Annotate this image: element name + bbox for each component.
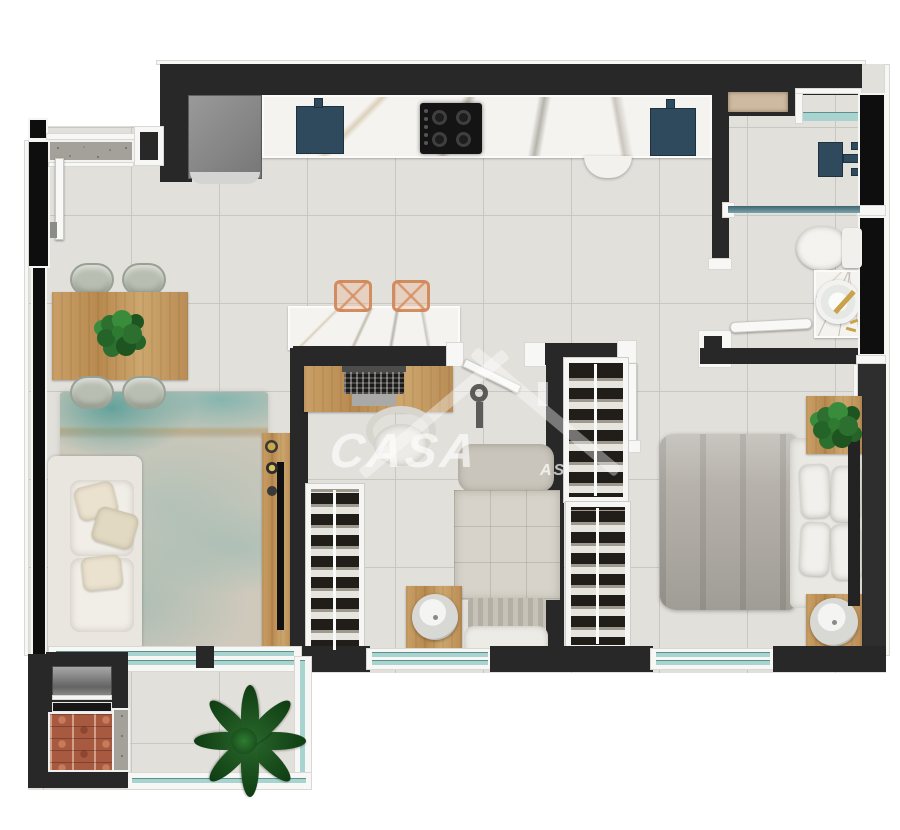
refrigerator-base bbox=[190, 172, 260, 184]
bathroom-left-wall-cap bbox=[708, 258, 732, 270]
shower-head bbox=[818, 142, 843, 177]
bedroom2-window-glass bbox=[656, 652, 770, 657]
console-decor-dark bbox=[266, 462, 278, 474]
cooktop-knob bbox=[424, 125, 428, 129]
right-window-upper bbox=[858, 93, 886, 207]
console-decor-small bbox=[267, 486, 277, 496]
barbecue-counter-lip bbox=[52, 695, 112, 700]
left-glazing bbox=[31, 266, 47, 656]
wardrobe-rail bbox=[333, 490, 336, 650]
entry-corner-wall bbox=[140, 132, 158, 160]
kitchen-faucet-right bbox=[666, 99, 675, 109]
outside-top bbox=[0, 0, 900, 64]
bar-stool bbox=[334, 280, 372, 312]
outside-bottom-right bbox=[312, 673, 886, 793]
cooktop-knob bbox=[424, 109, 428, 113]
bedroom1-doorframe-right bbox=[524, 342, 547, 367]
cooktop bbox=[420, 103, 482, 154]
balcony-left-wall bbox=[28, 654, 48, 788]
outside-bottom bbox=[0, 790, 900, 830]
bathroom-bottom-wall bbox=[700, 348, 862, 364]
outside-top-left-notch bbox=[0, 60, 164, 126]
dining-chair bbox=[122, 376, 166, 409]
floor-plan-canvas: CASA AS bbox=[0, 0, 900, 830]
island-counter bbox=[288, 306, 460, 350]
console-decor-gold bbox=[265, 440, 278, 453]
headboard bbox=[848, 438, 860, 606]
bedroom1-window-glass bbox=[372, 652, 488, 657]
double-bed-duvet bbox=[660, 434, 796, 610]
entry-door-handle bbox=[50, 222, 57, 238]
watermark-chimney bbox=[538, 382, 548, 406]
kitchen-faucet-left bbox=[314, 98, 323, 108]
laptop-keyboard bbox=[344, 372, 404, 394]
left-outer-frame bbox=[24, 140, 29, 656]
shower-glass-partition bbox=[728, 206, 860, 213]
bottom-wall-right bbox=[773, 646, 886, 672]
sliding-door-handle bbox=[196, 646, 214, 668]
entry-frame-top bbox=[46, 133, 136, 140]
kitchen-sink-right bbox=[650, 108, 696, 156]
barbecue-granite-strip bbox=[112, 708, 130, 772]
wardrobe-rail bbox=[594, 364, 597, 496]
bed-pillow bbox=[799, 521, 832, 576]
burner-icon bbox=[432, 110, 447, 125]
wardrobe-rail bbox=[596, 508, 599, 644]
bedroom1-window-glass2 bbox=[372, 660, 488, 665]
left-column bbox=[28, 118, 48, 140]
burner-icon bbox=[456, 110, 471, 125]
bathroom-niche bbox=[728, 92, 788, 112]
cooktop-knob bbox=[424, 141, 428, 145]
tv-screen bbox=[277, 462, 284, 630]
balcony-plant bbox=[184, 682, 304, 800]
bedroom1-top-wall bbox=[293, 346, 453, 366]
bottom-wall-corridor bbox=[490, 646, 653, 672]
burner-icon bbox=[432, 132, 447, 147]
watermark-key-icon bbox=[470, 384, 488, 402]
burner-icon bbox=[456, 132, 471, 147]
bed-pillow bbox=[799, 463, 832, 518]
right-wall-cap1 bbox=[856, 205, 886, 216]
nightstand-plant bbox=[828, 418, 840, 430]
bar-stool bbox=[392, 280, 430, 312]
cooktop-knob bbox=[424, 117, 428, 121]
toilet-tank bbox=[842, 228, 862, 268]
right-wall-cap2 bbox=[856, 355, 886, 364]
table-plant bbox=[112, 326, 124, 338]
single-bed-quilt bbox=[454, 490, 560, 600]
bedroom2-window-glass2 bbox=[656, 660, 770, 665]
dining-chair bbox=[70, 376, 114, 409]
barbecue-vent bbox=[52, 702, 112, 712]
bedroom1-lamp bbox=[412, 594, 458, 640]
right-window-mid bbox=[858, 216, 886, 356]
watermark-fragment: AS bbox=[540, 462, 566, 480]
barbecue-firebox bbox=[50, 714, 112, 770]
left-window-pier bbox=[26, 140, 50, 268]
plant-center bbox=[231, 728, 257, 754]
barbecue-counter bbox=[52, 666, 112, 696]
bedroom1-doorframe-left bbox=[446, 342, 464, 367]
right-wall-lower bbox=[858, 364, 886, 650]
bathroom-left-wall bbox=[712, 95, 729, 260]
kitchen-sink-left bbox=[296, 106, 344, 154]
sofa-pillow bbox=[80, 554, 123, 592]
shower-glass-shelf bbox=[803, 112, 859, 121]
bedroom2-door bbox=[627, 363, 637, 445]
cooktop-knob bbox=[424, 133, 428, 137]
bathroom-corner-frame-h bbox=[795, 88, 862, 94]
toilet bbox=[796, 226, 848, 270]
vanity-basin bbox=[816, 280, 860, 324]
watermark-brand: CASA bbox=[327, 424, 481, 479]
laptop-palmrest bbox=[352, 394, 396, 406]
refrigerator bbox=[188, 95, 262, 179]
